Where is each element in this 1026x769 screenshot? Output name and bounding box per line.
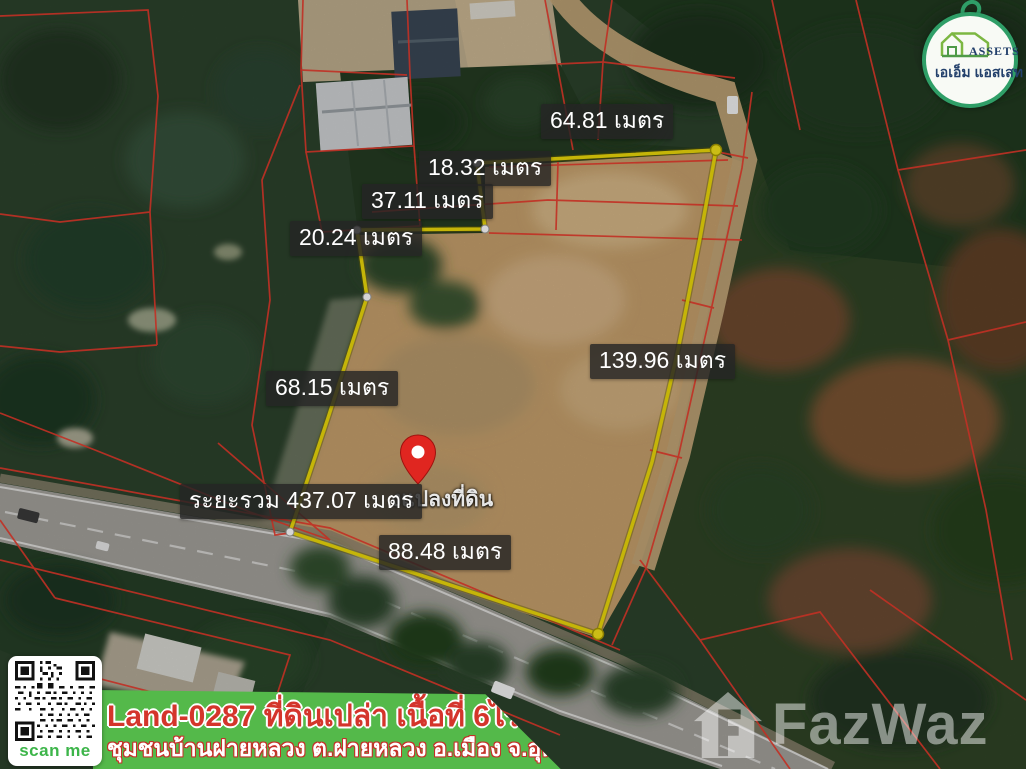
watermark-house-icon bbox=[692, 690, 764, 760]
measurement-label-left: 68.15 เมตร bbox=[266, 371, 398, 406]
measurement-label-top: 64.81 เมตร bbox=[541, 104, 673, 139]
measurement-label-20: 20.24 เมตร bbox=[290, 221, 422, 256]
qr-pattern bbox=[15, 661, 95, 741]
qr-code: scan me bbox=[8, 656, 102, 766]
total-distance-label: ระยะรวม 437.07 เมตร bbox=[180, 484, 422, 519]
measurement-label-18: 18.32 เมตร bbox=[419, 151, 551, 186]
logo-name-th: เอเอ็ม แอสเสท bbox=[935, 62, 1007, 84]
satellite-map bbox=[0, 0, 1026, 769]
brand-logo: ASSETS เอเอ็ม แอสเสท bbox=[913, 0, 1025, 112]
measurement-label-37: 37.11 เมตร bbox=[362, 184, 493, 219]
logo-name-en: ASSETS bbox=[969, 44, 1020, 59]
land-listing-image: งแปลงที่ดิน 64.81 เมตร 18.32 เมตร 37.11 … bbox=[0, 0, 1026, 769]
measurement-label-right: 139.96 เมตร bbox=[590, 344, 735, 379]
scan-me-label: scan me bbox=[19, 741, 91, 761]
logo-circle bbox=[922, 12, 1018, 108]
location-pin-icon bbox=[399, 434, 437, 486]
measurement-label-bottom: 88.48 เมตร bbox=[379, 535, 511, 570]
watermark-brand: FazWaz bbox=[772, 696, 989, 754]
watermark: FazWaz bbox=[692, 690, 989, 760]
